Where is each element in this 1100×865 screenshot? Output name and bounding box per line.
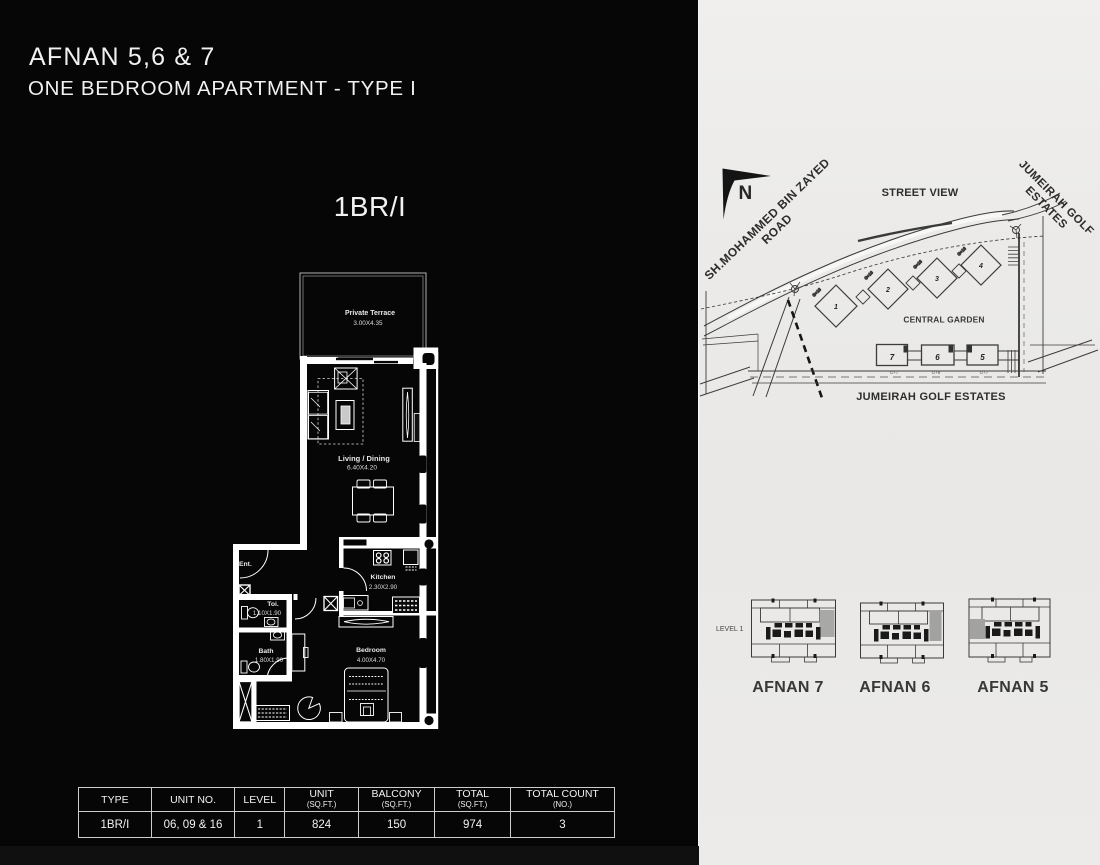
svg-text:5: 5: [980, 353, 985, 362]
svg-text:Toi.: Toi.: [267, 601, 279, 608]
svg-text:6: 6: [935, 353, 940, 362]
svg-text:N: N: [739, 183, 753, 204]
svg-text:2: 2: [885, 287, 890, 294]
svg-text:STREET VIEW: STREET VIEW: [882, 187, 959, 199]
svg-text:Kitchen: Kitchen: [371, 574, 396, 581]
svg-text:1: 1: [834, 304, 838, 311]
svg-text:6.40X4.20: 6.40X4.20: [347, 465, 377, 472]
svg-text:3: 3: [935, 276, 939, 283]
svg-text:CENTRAL GARDEN: CENTRAL GARDEN: [903, 315, 984, 325]
svg-text:3.00X4.35: 3.00X4.35: [353, 320, 383, 327]
svg-text:Bedroom: Bedroom: [356, 647, 386, 654]
svg-text:4.00X4.70: 4.00X4.70: [357, 657, 386, 664]
svg-text:4: 4: [978, 263, 983, 270]
svg-text:7: 7: [890, 353, 895, 362]
svg-text:Private Terrace: Private Terrace: [345, 310, 395, 317]
svg-text:G+16: G+16: [956, 245, 967, 256]
svg-text:G+16: G+16: [912, 258, 923, 269]
svg-text:2.30X2.90: 2.30X2.90: [369, 584, 398, 591]
svg-text:G+16: G+16: [811, 286, 822, 297]
svg-text:Living / Dining: Living / Dining: [338, 454, 390, 463]
svg-text:G+16: G+16: [863, 269, 874, 280]
svg-text:Bath: Bath: [258, 648, 273, 655]
svg-text:Ent.: Ent.: [239, 561, 252, 568]
